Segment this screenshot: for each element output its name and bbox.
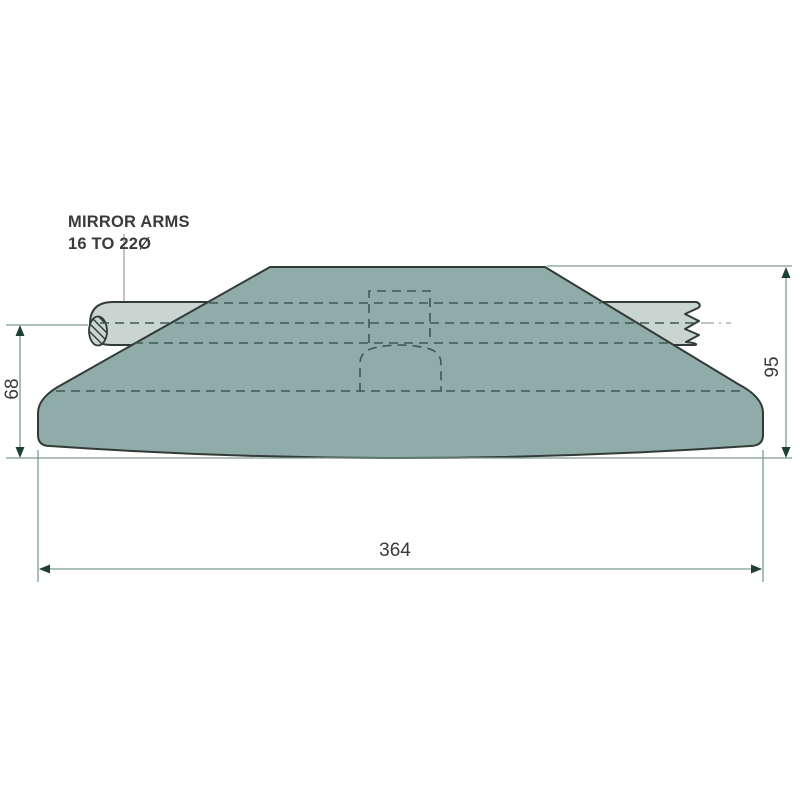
technical-drawing: MIRROR ARMS 16 TO 22Ø 68 95 xyxy=(0,0,800,800)
dim-text-68: 68 xyxy=(2,378,23,399)
arrowhead-95-up xyxy=(782,267,791,278)
arrowhead-364-right xyxy=(751,565,762,574)
drawing-canvas: MIRROR ARMS 16 TO 22Ø 68 95 xyxy=(0,0,800,800)
callout-line1: MIRROR ARMS xyxy=(68,213,190,231)
arrowhead-68-down xyxy=(16,447,25,458)
arrowhead-364-left xyxy=(39,565,50,574)
dim-text-364: 364 xyxy=(379,540,411,561)
callout-line2: 16 TO 22Ø xyxy=(68,235,151,253)
callout-label: MIRROR ARMS 16 TO 22Ø xyxy=(68,213,190,253)
arrowhead-95-down xyxy=(782,447,791,458)
dimension-364: 364 xyxy=(38,450,763,582)
clamp-base-body xyxy=(38,267,763,458)
dim-text-95: 95 xyxy=(762,356,783,377)
arrowhead-68-up xyxy=(16,325,25,336)
